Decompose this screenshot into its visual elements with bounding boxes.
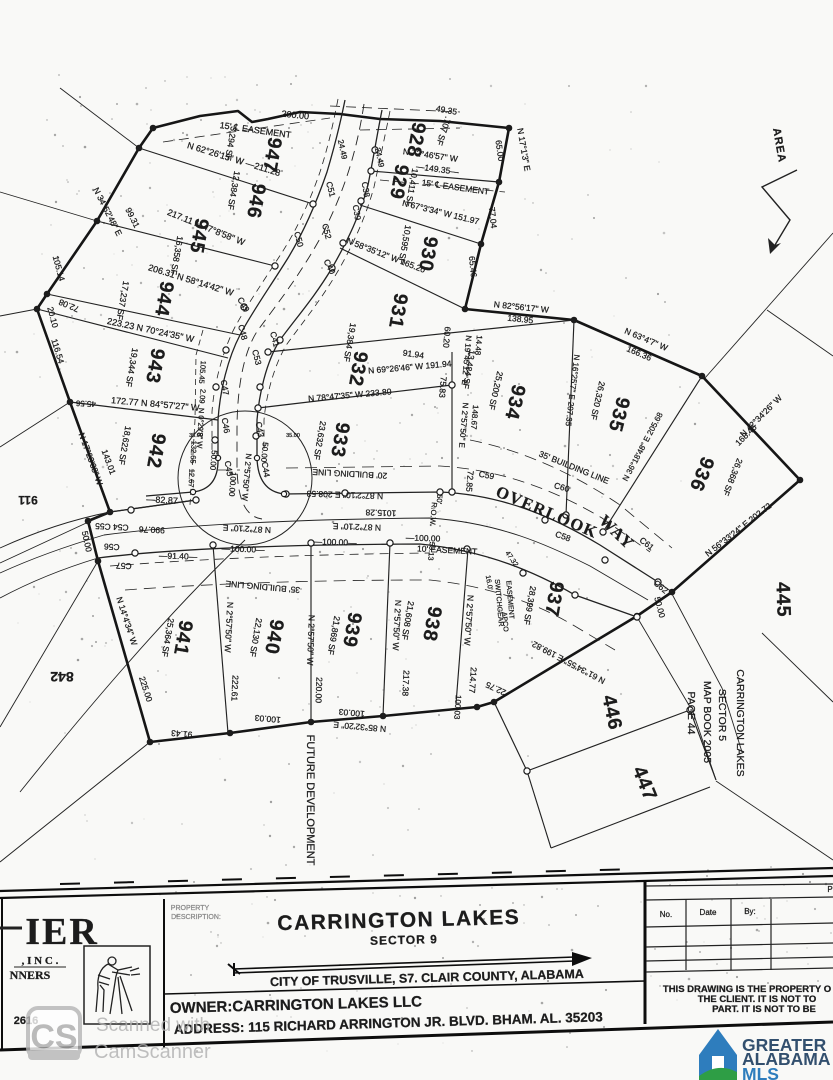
svg-text:132.65: 132.65 bbox=[188, 440, 198, 463]
svg-text:SECTOR 9: SECTOR 9 bbox=[370, 932, 438, 948]
svg-text:NNERS: NNERS bbox=[10, 968, 51, 982]
svg-text:, I N C .: , I N C . bbox=[22, 955, 59, 967]
svg-text:50.00: 50.00 bbox=[259, 442, 270, 463]
svg-text:N 2°57'50" W: N 2°57'50" W bbox=[305, 615, 317, 666]
svg-text:12.67: 12.67 bbox=[187, 469, 197, 488]
svg-text:50': 50' bbox=[435, 494, 445, 505]
svg-text:445: 445 bbox=[771, 582, 794, 618]
svg-text:2.09: 2.09 bbox=[197, 389, 207, 404]
svg-text:75.83: 75.83 bbox=[437, 376, 449, 398]
svg-text:PROPERTY: PROPERTY bbox=[171, 905, 210, 912]
svg-text:91.43: 91.43 bbox=[170, 728, 192, 740]
svg-text:214.77: 214.77 bbox=[467, 667, 479, 694]
svg-text:MLS: MLS bbox=[742, 1064, 779, 1080]
svg-text:PART. IT IS NOT TO BE: PART. IT IS NOT TO BE bbox=[712, 1004, 816, 1015]
svg-text:—100.00—: —100.00— bbox=[313, 536, 357, 548]
svg-text:—100.00—: —100.00— bbox=[221, 543, 265, 555]
svg-text:PAGE 44: PAGE 44 bbox=[685, 692, 697, 735]
svg-text:35.00: 35.00 bbox=[286, 433, 300, 439]
svg-text:SECTOR 5: SECTOR 5 bbox=[716, 689, 728, 741]
svg-text:911: 911 bbox=[18, 493, 38, 507]
svg-text:14.48: 14.48 bbox=[473, 335, 484, 356]
svg-text:CARRINGTON LAKES: CARRINGTON LAKES bbox=[734, 669, 746, 776]
svg-text:—91.40—: —91.40— bbox=[159, 550, 198, 561]
svg-text:Date: Date bbox=[700, 908, 717, 917]
svg-text:DESCRIPTION:: DESCRIPTION: bbox=[171, 914, 221, 921]
svg-text:100.03: 100.03 bbox=[452, 695, 463, 721]
svg-text:217.38: 217.38 bbox=[400, 670, 411, 697]
svg-text:50.00: 50.00 bbox=[208, 450, 219, 471]
svg-text:72.85: 72.85 bbox=[464, 470, 476, 492]
svg-text:53.13: 53.13 bbox=[426, 541, 437, 560]
svg-text:842: 842 bbox=[50, 669, 74, 685]
svg-text:MAP BOOK 2005: MAP BOOK 2005 bbox=[701, 681, 713, 763]
svg-text:222.61: 222.61 bbox=[229, 675, 240, 702]
svg-text:1015.28: 1015.28 bbox=[365, 507, 396, 518]
svg-text:N 87°2'10" E: N 87°2'10" E bbox=[332, 521, 381, 533]
svg-text:P: P bbox=[827, 885, 832, 894]
svg-text:CS: CS bbox=[30, 1018, 77, 1056]
svg-text:CamScanner: CamScanner bbox=[94, 1041, 211, 1063]
svg-text:C56: C56 bbox=[104, 542, 120, 553]
svg-text:No.: No. bbox=[660, 910, 672, 919]
svg-text:C57: C57 bbox=[116, 561, 132, 572]
svg-text:60.20: 60.20 bbox=[441, 326, 453, 348]
svg-text:C54 C55: C54 C55 bbox=[95, 521, 129, 533]
svg-text:Scanned with: Scanned with bbox=[96, 1015, 210, 1036]
svg-text:990.76: 990.76 bbox=[138, 524, 165, 535]
svg-text:220.00: 220.00 bbox=[314, 677, 325, 704]
svg-text:—82.87: —82.87 bbox=[146, 494, 178, 506]
svg-text:45.56: 45.56 bbox=[75, 398, 96, 408]
svg-text:By:: By: bbox=[744, 907, 756, 916]
svg-text:35.00: 35.00 bbox=[189, 433, 203, 439]
svg-text:FUTURE DEVELOPMENT: FUTURE DEVELOPMENT bbox=[304, 735, 316, 866]
